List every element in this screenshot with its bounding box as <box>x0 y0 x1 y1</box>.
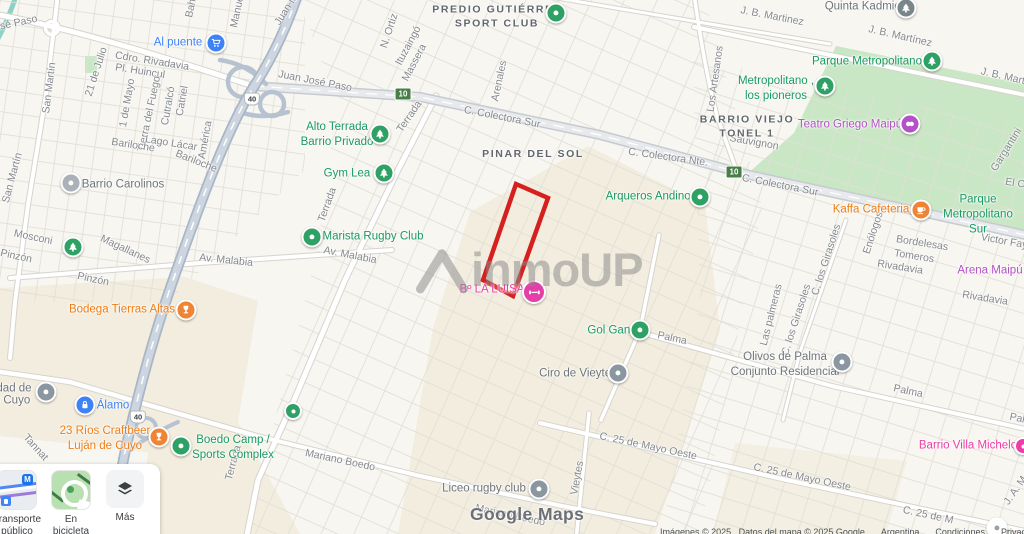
tree-icon[interactable] <box>374 163 395 184</box>
poi-label[interactable]: Liceo rugby club <box>442 482 526 497</box>
poi-label[interactable]: Gym Lea <box>324 167 371 182</box>
attribution-link[interactable]: Argentina <box>881 527 920 534</box>
cart-icon[interactable] <box>206 33 227 54</box>
street-label: El C <box>1004 176 1024 193</box>
attribution-link[interactable]: Condiciones <box>935 527 985 534</box>
attribution-link[interactable]: Privacidad <box>1001 527 1024 534</box>
route-shield: 10 <box>395 88 412 101</box>
map-layer-controls: M Transporte público En bicicleta Más <box>0 464 160 534</box>
poi-label[interactable]: Alto Terrada Barrio Privado <box>301 120 374 150</box>
poi-label[interactable]: Quinta Kadmiel <box>825 0 904 14</box>
route-shield: 10 <box>726 166 743 179</box>
dot-icon[interactable] <box>630 320 651 341</box>
tree-icon[interactable] <box>370 124 391 145</box>
poi-label[interactable]: Ciro de Vieytes <box>539 367 617 382</box>
area-label: BARRIO VIEJO TONEL 1 <box>700 113 794 140</box>
dot-icon[interactable] <box>832 352 853 373</box>
metro-icon: M <box>22 474 33 485</box>
poi-label[interactable]: Parque Metropolitano Sur <box>943 193 1013 238</box>
transit-layer-label: Transporte público <box>0 514 41 534</box>
poi-label[interactable]: Teatro Griego Maipú <box>798 118 902 133</box>
poi-label[interactable]: Kaffa Cafeteria <box>833 203 910 218</box>
train-icon <box>1 496 11 506</box>
poi-label[interactable]: Olivos de Palma Conjunto Residencial <box>731 350 840 380</box>
poi-label[interactable]: Metropolitano , los pioneros <box>738 74 814 104</box>
more-layers-button[interactable]: Más <box>102 470 148 534</box>
poi-label[interactable]: Barrio Carolinos <box>82 178 164 193</box>
poi-label[interactable]: Arqueros Andinos <box>606 190 697 205</box>
bike-layer-label: En bicicleta <box>48 514 94 534</box>
poi-label[interactable]: 23 Ríos Craftbeer Luján de Cuyo <box>60 424 151 454</box>
inmoup-logo-icon <box>416 246 468 294</box>
bike-layer-button[interactable]: En bicicleta <box>48 470 94 534</box>
dot-icon[interactable] <box>529 479 550 500</box>
route-shield: 40 <box>130 411 146 424</box>
more-layers-label: Más <box>116 512 135 524</box>
dot-icon[interactable] <box>546 3 567 24</box>
area-label: PINAR DEL SOL <box>482 148 584 162</box>
layers-icon <box>117 481 133 497</box>
attribution-text: Imágenes © 2025 , Datos del mapa © 2025 … <box>660 527 865 534</box>
wine-icon[interactable] <box>176 300 197 321</box>
dot-icon[interactable] <box>284 402 302 420</box>
transit-layer-button[interactable]: M Transporte público <box>0 470 40 534</box>
poi-label[interactable]: Arena Maipú <box>957 264 1022 279</box>
poi-label[interactable]: Bodega Tierras Altas <box>69 303 175 318</box>
theater-icon[interactable] <box>900 114 921 135</box>
cup-icon[interactable] <box>911 200 932 221</box>
transit-map-thumbnail: M <box>0 470 37 510</box>
map-attribution: Imágenes © 2025 , Datos del mapa © 2025 … <box>660 527 1024 534</box>
route-shield: 40 <box>244 93 260 106</box>
poi-label[interactable]: Barrio Villa Michelo <box>919 439 1017 454</box>
wine-icon[interactable] <box>149 427 170 448</box>
poi-label[interactable]: Al puente <box>154 36 203 51</box>
dot-icon[interactable] <box>608 363 629 384</box>
street-label: Pal <box>1008 411 1024 428</box>
poi-label[interactable]: Marista Rugby Club <box>323 230 424 245</box>
inmoup-watermark: inmoUP <box>416 242 643 297</box>
dot-icon[interactable] <box>36 382 57 403</box>
google-maps-watermark: Google Maps <box>470 504 584 525</box>
poi-label[interactable]: Parque Metropolitano <box>812 55 922 70</box>
map-canvas[interactable]: osé PasoJuan José PasoSan MartínSan Mart… <box>0 0 1024 534</box>
dot-icon[interactable] <box>171 436 192 457</box>
roundabout-icon <box>61 480 88 507</box>
dot-icon[interactable] <box>302 227 323 248</box>
poi-label[interactable]: Álamo <box>97 399 130 414</box>
area-label: PREDIO GUTIÉRREZ SPORT CLUB <box>432 3 561 30</box>
lock-icon[interactable] <box>75 395 96 416</box>
poi-label[interactable]: Boedo Camp / Sports Complex <box>192 433 274 463</box>
poi-label[interactable]: e Cuyo <box>0 394 30 409</box>
tree-icon[interactable] <box>815 76 836 97</box>
dot-icon[interactable] <box>61 173 82 194</box>
dot-icon[interactable] <box>690 187 711 208</box>
tree-icon[interactable] <box>63 237 84 258</box>
bike-map-thumbnail <box>51 470 91 510</box>
tree-icon[interactable] <box>922 51 943 72</box>
inmoup-watermark-text: inmoUP <box>471 242 643 297</box>
more-layers-thumbnail <box>106 470 144 508</box>
